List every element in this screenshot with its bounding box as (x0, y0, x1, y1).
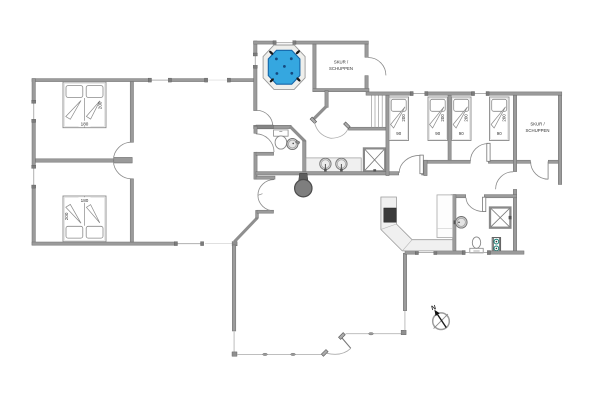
svg-text:SKUR /: SKUR / (334, 60, 349, 65)
svg-text:180: 180 (81, 121, 89, 126)
svg-text:SKUR /: SKUR / (530, 122, 545, 127)
svg-text:90: 90 (497, 131, 502, 136)
svg-text:200: 200 (401, 114, 406, 122)
svg-text:200: 200 (64, 212, 69, 220)
svg-text:200: 200 (98, 101, 103, 109)
svg-text:200: 200 (440, 114, 445, 122)
svg-text:SCHUPPEN: SCHUPPEN (329, 66, 353, 71)
svg-text:SCHUPPEN: SCHUPPEN (526, 128, 550, 133)
svg-text:90: 90 (396, 131, 401, 136)
svg-text:200: 200 (502, 114, 507, 122)
svg-text:90: 90 (435, 131, 440, 136)
svg-text:90: 90 (459, 131, 464, 136)
svg-text:200: 200 (464, 114, 469, 122)
svg-text:N: N (431, 304, 438, 312)
svg-text:180: 180 (81, 198, 89, 203)
